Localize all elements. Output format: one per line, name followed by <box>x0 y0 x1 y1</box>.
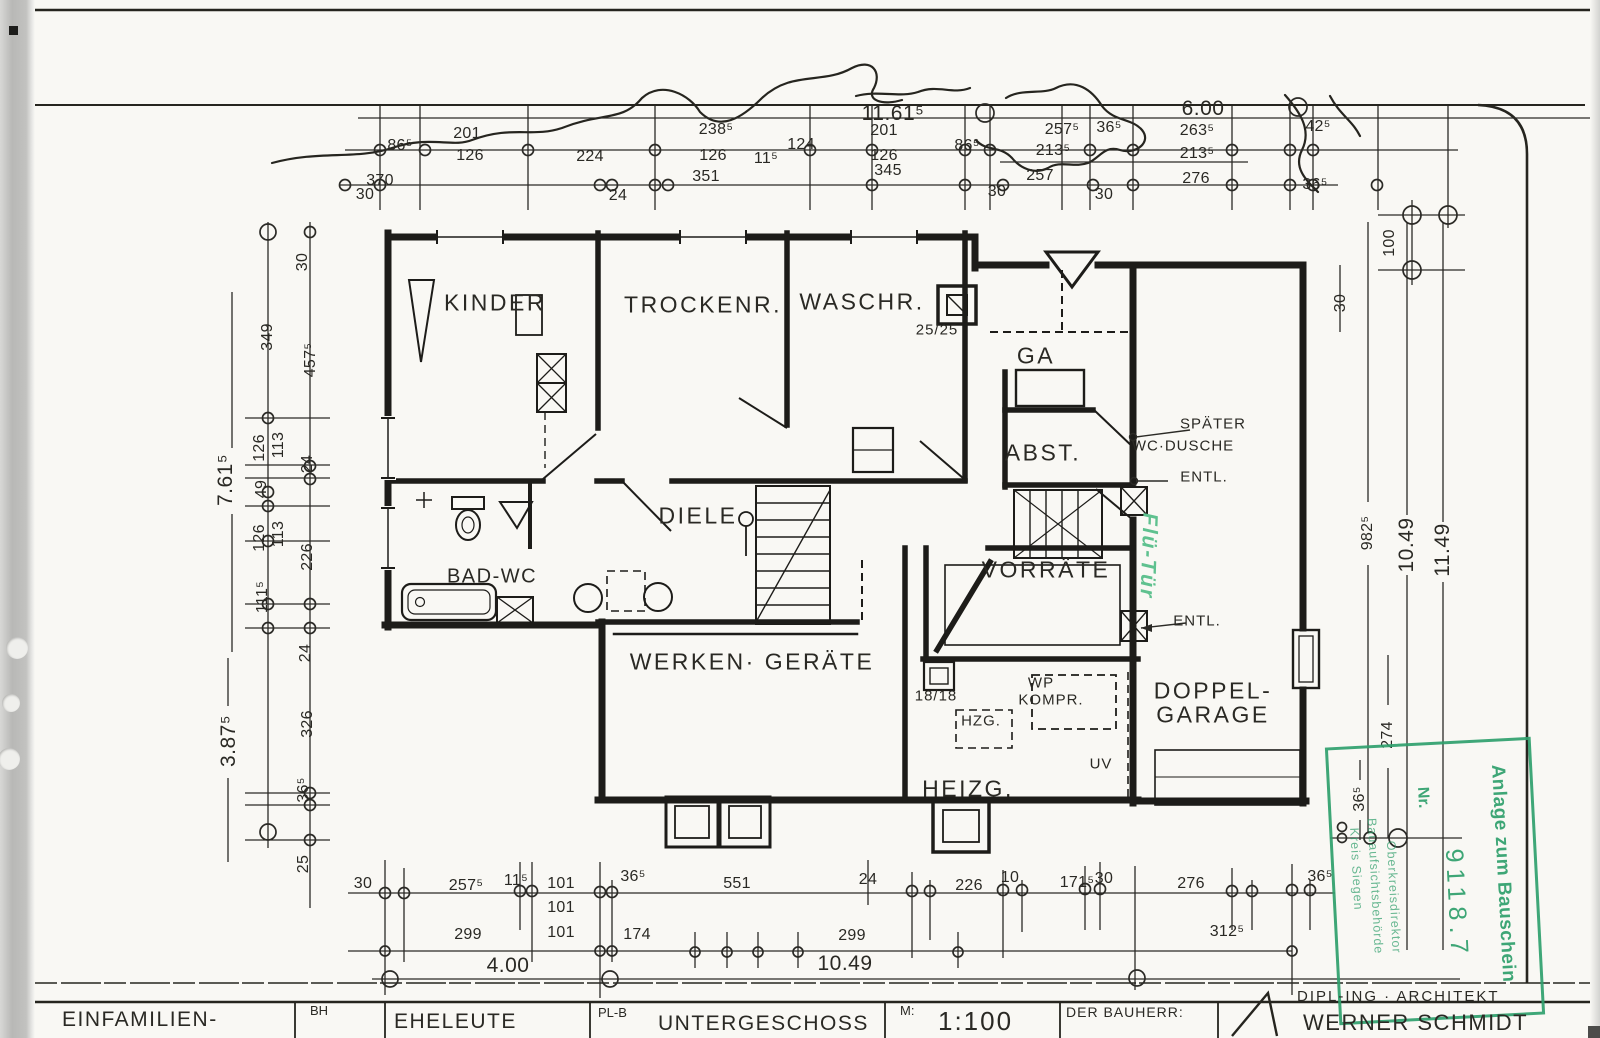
architect-title: DIPL-ING · ARCHITEKT <box>1297 988 1500 1005</box>
stamp-authority-line: Kreis Siegen <box>1347 827 1365 910</box>
tear-sketch <box>272 65 1360 192</box>
stamp-authority-line: Oberkreisdirektor <box>1384 840 1404 953</box>
stamp-nr-label: Nr. <box>1413 786 1432 808</box>
punch-hole <box>2 694 20 712</box>
door-leaf <box>409 280 434 362</box>
handwritten-note: Flü-Tür <box>1135 512 1162 599</box>
stamp-title: Anlage zum Bauschein <box>1486 764 1519 983</box>
sheet-name: UNTERGESCHOSS <box>658 1012 869 1036</box>
sink <box>500 502 532 528</box>
architect-logo-triangle <box>1232 993 1277 1036</box>
toilet <box>452 497 484 509</box>
client-name: EHELEUTE <box>394 1010 517 1034</box>
stamp-authority-line: Bauaufsichtsbehörde <box>1365 818 1386 955</box>
stamp-number: 9118.7 <box>1439 848 1474 960</box>
scan-mark <box>9 26 18 35</box>
scan-edge-right <box>1590 0 1600 1038</box>
scan-edge-left <box>0 0 35 1038</box>
scan-corner-mark <box>1588 1026 1600 1038</box>
scanned-floor-plan-page: KINDERTROCKENR.WASCHR.GAABST.DIELEBAD-WC… <box>0 0 1600 1038</box>
staircase <box>739 486 1102 624</box>
punch-hole <box>6 637 28 659</box>
approval-stamp: Anlage zum Bauschein Nr. 9118.7 Kreis Si… <box>1325 737 1545 1025</box>
bauherr-label: DER BAUHERR: <box>1066 1004 1184 1020</box>
scale-value: 1:100 <box>938 1006 1013 1037</box>
bh-label: BH <box>310 1003 328 1018</box>
washbasin <box>644 583 672 611</box>
washbasin <box>574 584 602 612</box>
project-name: EINFAMILIEN- <box>62 1008 218 1032</box>
plb-label: PL-B <box>598 1005 627 1020</box>
windows <box>380 229 1319 688</box>
dashed-lines <box>545 270 1128 798</box>
scale-label: M: <box>900 1003 914 1018</box>
architect-name: WERNER SCHMIDT <box>1303 1010 1528 1036</box>
entry-triangle <box>1046 252 1098 287</box>
fixtures <box>402 280 1300 852</box>
